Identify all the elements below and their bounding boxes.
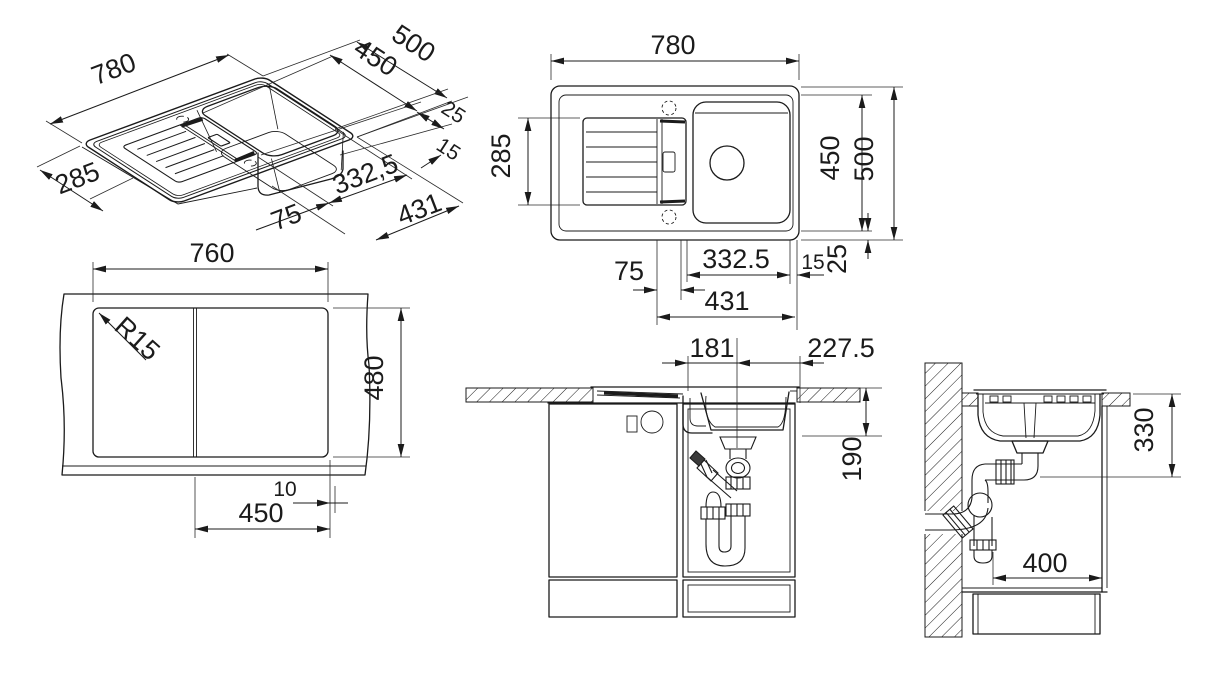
dim-label-450-top: 450: [815, 135, 845, 180]
iso-drainboard: [122, 117, 258, 183]
siphon-nut-1: [726, 477, 750, 489]
siphon-dome-cap: [706, 492, 721, 507]
side-section-view: 330 400: [923, 363, 1181, 637]
u-bend-outer: [706, 519, 745, 566]
siphon-nut-2: [726, 504, 750, 516]
dim-label-75-top: 75: [614, 256, 644, 286]
dim-label-25-iso: 25: [437, 97, 469, 129]
side-sink-profile: [974, 390, 1106, 453]
top-view: 780 285 450 500 25 332.5 15: [486, 30, 903, 330]
top-overflow-cover: [663, 152, 675, 172]
dim-label-431-top: 431: [704, 286, 749, 316]
dim-label-780-top: 780: [650, 30, 695, 60]
side-drain-tube: [1024, 403, 1036, 438]
dishwasher-branch-pipe: [707, 470, 737, 498]
side-drainboard-ribs: [990, 396, 1091, 402]
front-siphon: [690, 437, 756, 566]
front-plinth-right: [683, 580, 795, 617]
cutout-view: R15 760 480 10 450: [60, 238, 410, 538]
isometric-view: 780 500 450 25 15 285 332,5: [37, 19, 469, 240]
sink-technical-drawing: 780 500 450 25 15 285 332,5: [0, 0, 1224, 678]
side-pipe-cap: [974, 550, 992, 563]
iso-tap-hole-front: [242, 159, 259, 167]
dim-label-760: 760: [189, 238, 234, 268]
front-cabinet-left-door: [549, 404, 677, 577]
side-trap-fitting: [968, 493, 992, 517]
knob-symbol: [641, 411, 663, 433]
top-bowl: [693, 102, 790, 223]
dim-label-431-iso: 431: [393, 187, 446, 231]
dim-label-190: 190: [837, 436, 867, 481]
front-sink-profile: [591, 387, 799, 433]
door-handle-symbol: [627, 416, 637, 432]
dim-label-181: 181: [689, 333, 734, 363]
cutout-dimensions: R15 760 480 10 450: [93, 238, 410, 538]
iso-dimensions: 780 500 450 25 15 285 332,5: [37, 19, 469, 240]
technical-drawing-sheet: 780 500 450 25 15 285 332,5: [0, 0, 1224, 678]
u-bend-inner: [719, 519, 731, 552]
dim-label-r15: R15: [109, 311, 166, 366]
side-section-dimensions: 330 400: [993, 394, 1181, 585]
dim-label-480: 480: [359, 355, 389, 400]
side-drain-flange: [1012, 441, 1048, 453]
dim-label-400: 400: [1022, 548, 1067, 578]
dim-label-285-iso: 285: [51, 156, 104, 200]
front-cabinet: [548, 403, 795, 617]
dim-label-15-top: 15: [801, 251, 824, 274]
dim-label-450-cutout: 450: [238, 498, 283, 528]
front-countertop-left: [466, 388, 593, 402]
top-tap-hole-rear: [662, 101, 676, 115]
dim-label-332-5-top: 332.5: [702, 244, 770, 274]
top-drainboard: [583, 118, 686, 205]
siphon-nut-3: [701, 507, 725, 519]
side-wall: [925, 363, 962, 637]
branch-tip: [690, 451, 705, 466]
front-section-view: 181 227.5 190: [466, 333, 882, 617]
top-view-dimensions: 780 285 450 500 25 332.5 15: [486, 30, 903, 330]
dim-label-15-iso: 15: [432, 134, 464, 166]
top-drain-hole: [710, 146, 744, 180]
dim-label-500-top: 500: [849, 136, 879, 181]
side-countertop-left: [962, 393, 978, 406]
front-plinth-left: [549, 580, 677, 617]
dim-label-75-iso: 75: [267, 198, 306, 237]
iso-sink-outer-rim: [82, 76, 357, 204]
top-tap-hole-front: [662, 210, 676, 224]
front-countertop-right: [797, 388, 860, 402]
dim-label-227-5: 227.5: [807, 333, 875, 363]
side-countertop-right: [1102, 393, 1130, 406]
dim-label-332-5-iso: 332,5: [328, 148, 402, 200]
dim-label-780: 780: [87, 47, 140, 91]
dim-label-285-top: 285: [486, 133, 516, 178]
dim-label-330: 330: [1129, 407, 1159, 452]
side-plinth: [973, 594, 1100, 634]
dim-label-25-top: 25: [822, 244, 852, 274]
